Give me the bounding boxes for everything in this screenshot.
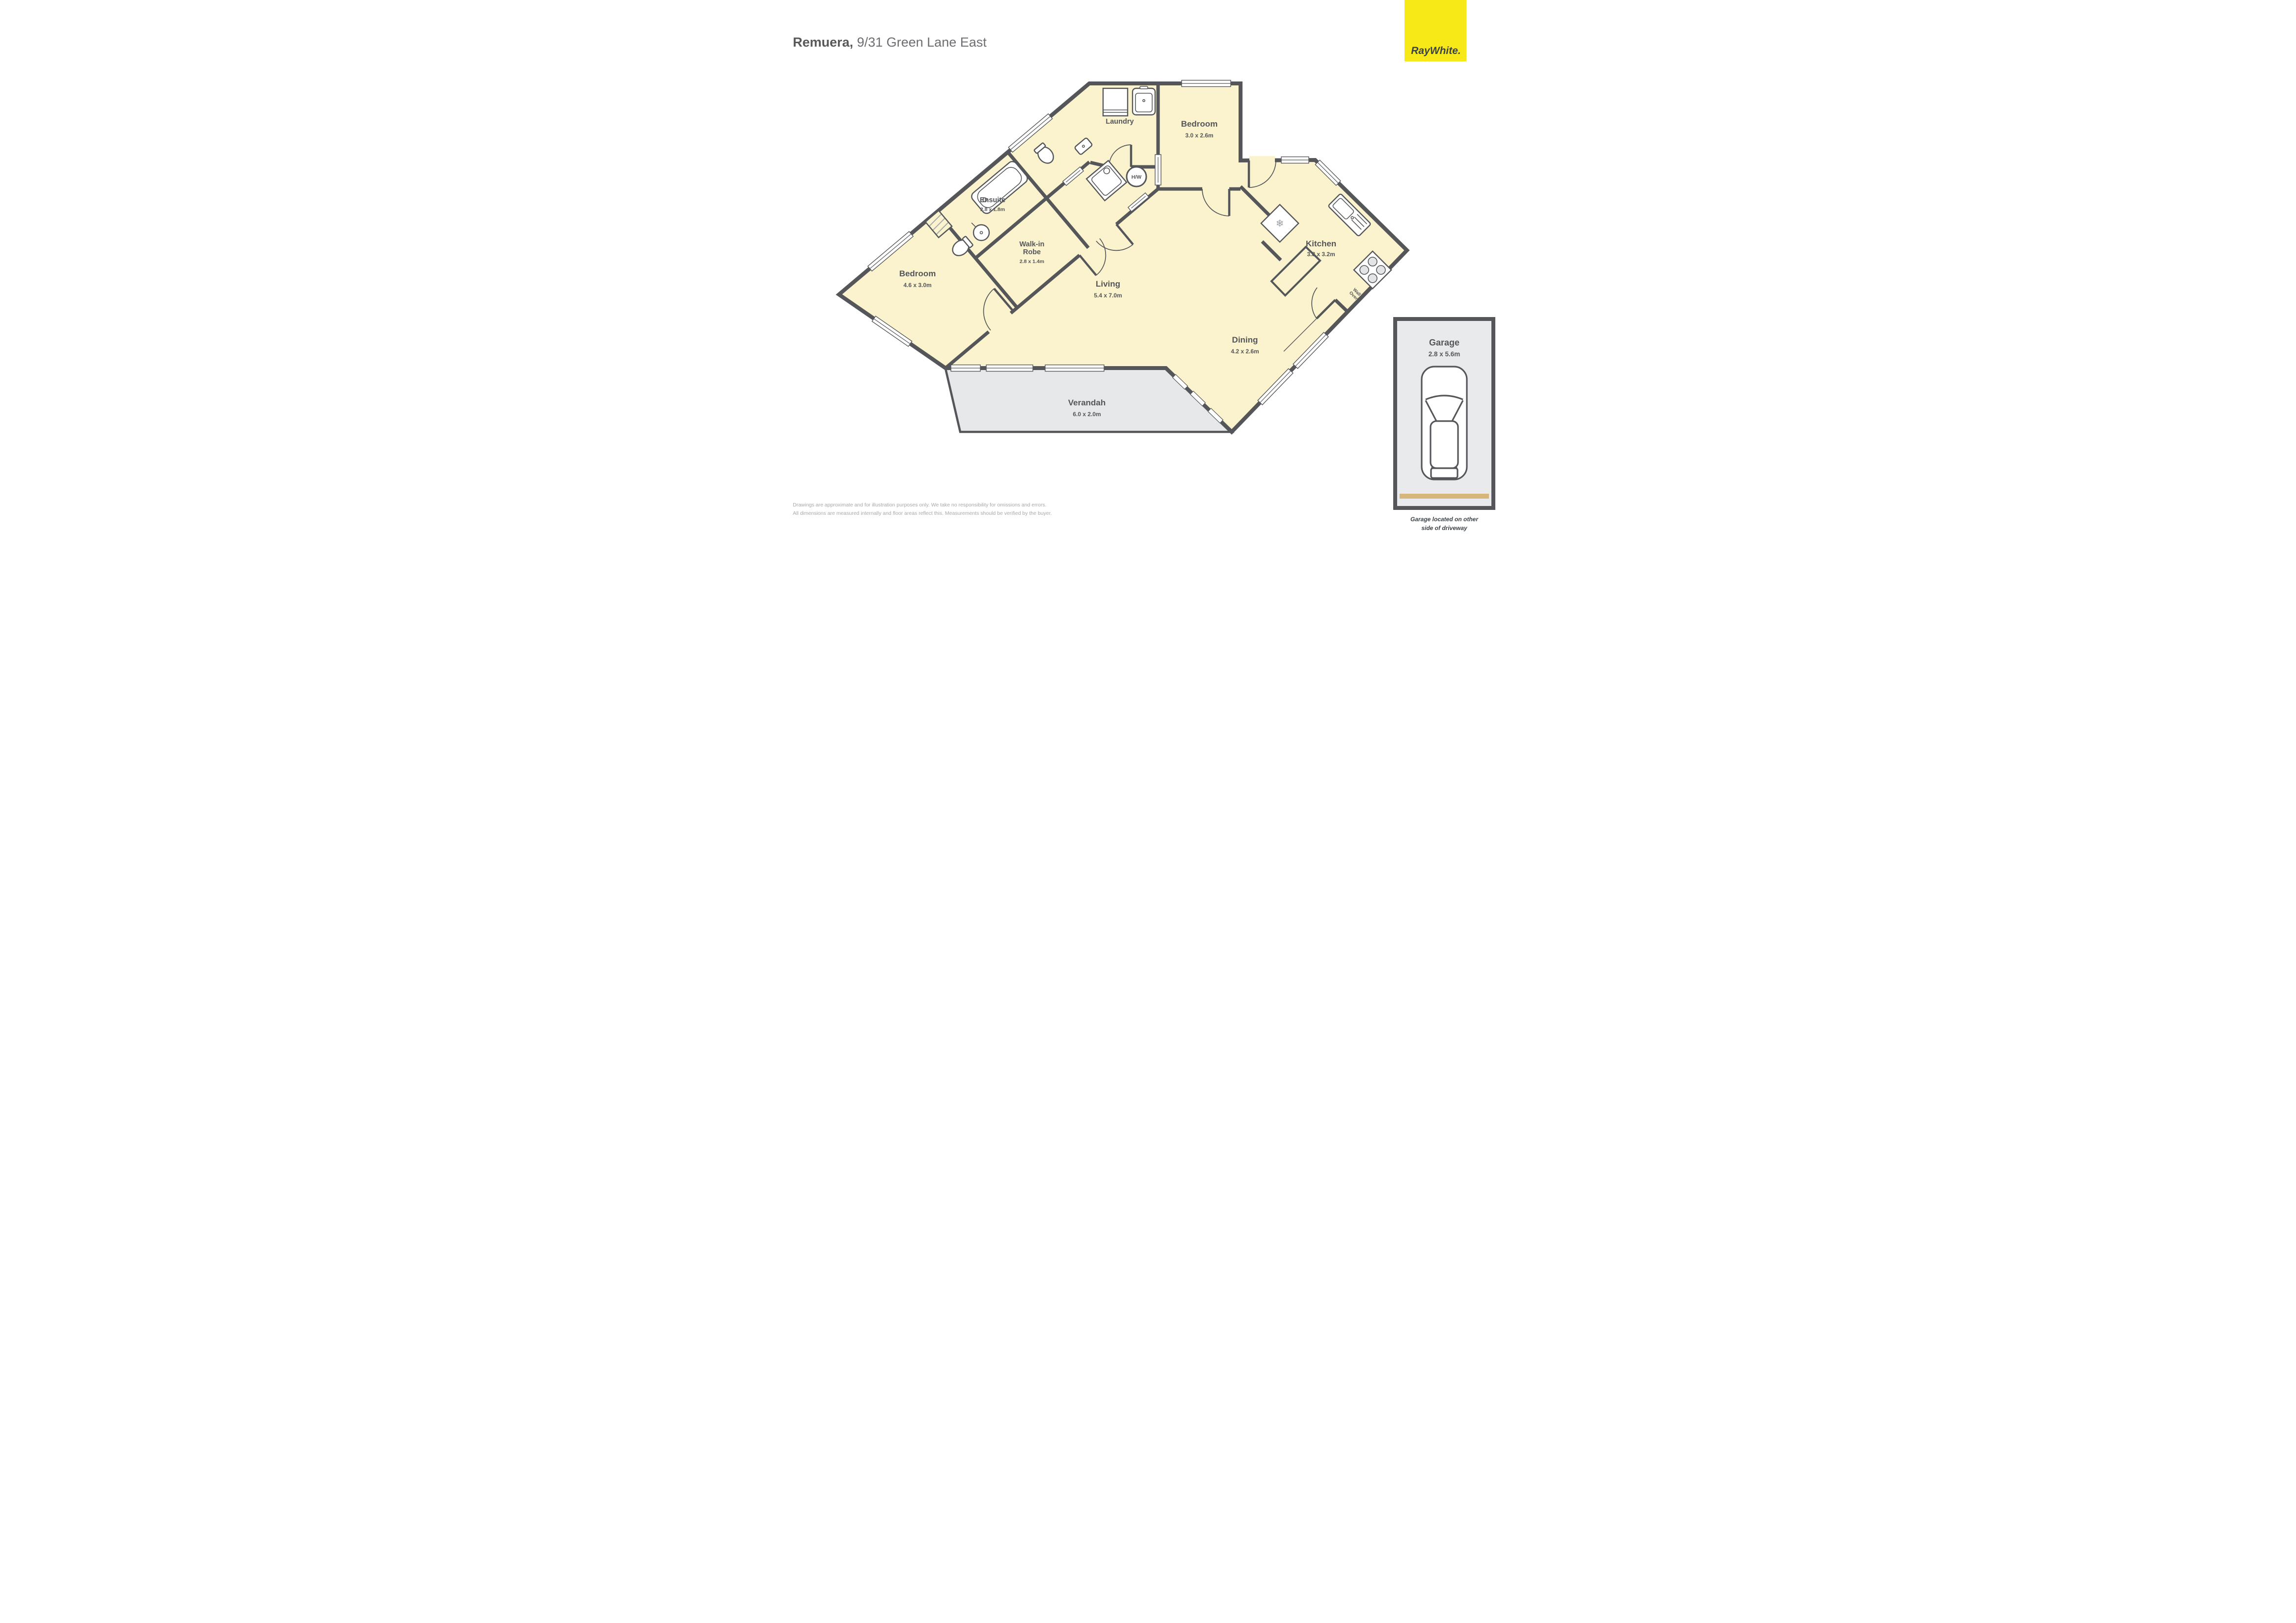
label-garage-name: Garage	[1429, 338, 1459, 347]
window-living-bottom-3	[1045, 365, 1104, 372]
label-wir-dims: 2.8 x 1.4m	[1020, 259, 1044, 265]
label-wir-name-2: Robe	[1023, 248, 1041, 256]
floor-plan-canvas: Remuera, 9/31 Green Lane East RayWhite.	[765, 0, 1531, 541]
bedroom-small-slider	[1155, 155, 1161, 185]
title-suburb: Remuera,	[793, 35, 853, 50]
label-verandah-dims: 6.0 x 2.0m	[1073, 411, 1101, 418]
page-title: Remuera, 9/31 Green Lane East	[793, 35, 987, 50]
laundry-tub-icon	[1133, 86, 1155, 115]
entry-door-gap	[1249, 156, 1275, 164]
label-living-name: Living	[1096, 279, 1120, 289]
window-bedroom-small	[1182, 80, 1231, 87]
label-garage-dims: 2.8 x 5.6m	[1429, 350, 1460, 358]
label-bedroom-main-name: Bedroom	[899, 269, 936, 278]
label-bedroom-small-dims: 3.0 x 2.6m	[1185, 132, 1213, 139]
label-laundry-name: Laundry	[1106, 118, 1134, 126]
title-address: 9/31 Green Lane East	[853, 35, 987, 50]
disclaimer-line-2: All dimensions are measured internally a…	[793, 510, 1052, 516]
label-ensuite-name: Ensuite	[980, 196, 1005, 204]
label-living-dims: 5.4 x 7.0m	[1094, 292, 1122, 299]
label-kitchen-name: Kitchen	[1306, 239, 1336, 248]
label-bedroom-small-name: Bedroom	[1181, 119, 1218, 129]
garage-panel: Garage 2.8 x 5.6m Garage located on othe…	[1395, 319, 1493, 532]
label-ensuite-dims: 2.8 x 1.8m	[980, 207, 1005, 213]
washing-machine-icon	[1103, 88, 1128, 116]
label-wir-name-1: Walk-in	[1019, 240, 1044, 248]
disclaimer-line-1: Drawings are approximate and for illustr…	[793, 502, 1047, 508]
brand-logo: RayWhite.	[1405, 0, 1466, 61]
page: Remuera, 9/31 Green Lane East RayWhite.	[765, 0, 1531, 541]
garage-caption-1: Garage located on other	[1410, 516, 1479, 523]
car-icon	[1422, 367, 1467, 479]
label-bedroom-main-dims: 4.6 x 3.0m	[903, 282, 931, 289]
hot-water-cylinder: H/W	[1127, 167, 1146, 186]
garage-caption-2: side of driveway	[1421, 525, 1468, 532]
window-living-bottom-2	[986, 365, 1033, 372]
garage-door-strip	[1400, 494, 1489, 499]
hot-water-label: H/W	[1132, 174, 1142, 180]
fridge-snowflake-icon: ❄	[1276, 218, 1284, 229]
brand-logo-text: RayWhite.	[1411, 45, 1461, 56]
label-dining-name: Dining	[1232, 335, 1258, 345]
window-entry	[1281, 157, 1309, 163]
label-kitchen-dims: 3.8 x 3.2m	[1307, 251, 1335, 258]
label-verandah-name: Verandah	[1068, 398, 1106, 407]
window-living-bottom-1	[951, 365, 980, 372]
label-dining-dims: 4.2 x 2.6m	[1231, 348, 1259, 355]
